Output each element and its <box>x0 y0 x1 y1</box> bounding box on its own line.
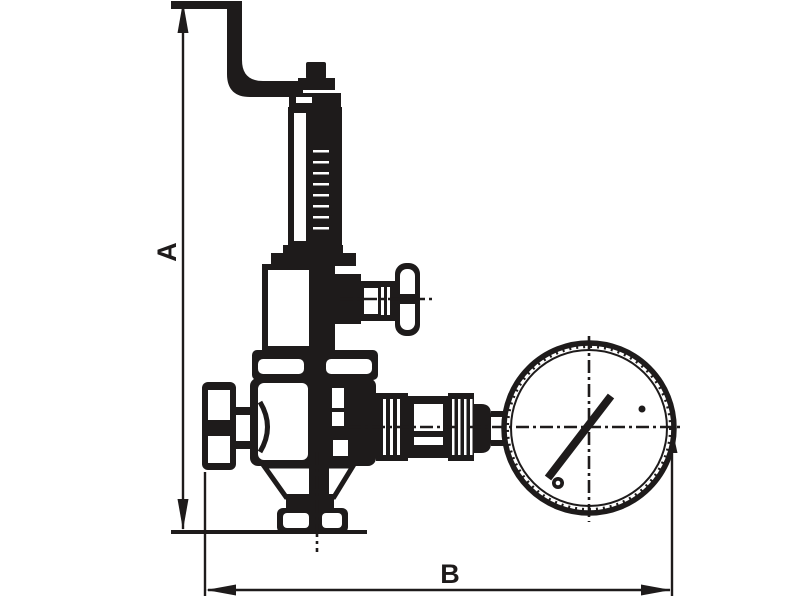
inlet-stem-top <box>234 407 254 415</box>
valve-technical-drawing: A B <box>0 0 800 598</box>
flange-block-slot-right <box>326 359 372 374</box>
flange-block-slot-left <box>258 359 304 374</box>
housing-slot <box>294 113 306 241</box>
t-handle-stem-window <box>364 288 378 314</box>
valve-body <box>250 378 376 466</box>
outlet-flange-window-left <box>283 513 309 528</box>
dimension-b-arrow-left-icon <box>206 585 236 596</box>
pipe-top-handle <box>171 1 233 9</box>
dimension-a-label: A <box>152 242 182 262</box>
yoke-stem-column <box>311 264 335 352</box>
outlet-center-column <box>309 462 329 510</box>
bent-discharge-pipe <box>171 1 303 97</box>
pipe-elbow <box>227 1 303 97</box>
outlet-taper <box>264 466 353 497</box>
yoke-frame <box>262 264 361 352</box>
connector-end-cap <box>474 404 491 453</box>
upper-flange-block <box>252 350 378 380</box>
inlet-cap-window-bottom <box>208 436 230 463</box>
outlet-flange-window-right <box>322 513 342 528</box>
dimension-a-arrow-down-icon <box>178 499 189 530</box>
dimension-b-label: B <box>440 559 460 589</box>
bonnet-flange-slot <box>296 97 312 103</box>
gauge-dial-dot <box>639 406 646 413</box>
dimension-b-arrow-right-icon <box>641 585 671 596</box>
inlet-cap-window-top <box>208 390 230 420</box>
drawing-canvas: A B <box>0 0 800 598</box>
bonnet-nut <box>306 62 326 79</box>
inlet-cap <box>202 382 254 470</box>
yoke-window <box>268 270 309 346</box>
bottom-outlet <box>264 452 353 552</box>
bonnet-cap <box>298 78 335 90</box>
body-center-column <box>308 378 330 466</box>
inlet-stem-bottom <box>234 441 254 449</box>
